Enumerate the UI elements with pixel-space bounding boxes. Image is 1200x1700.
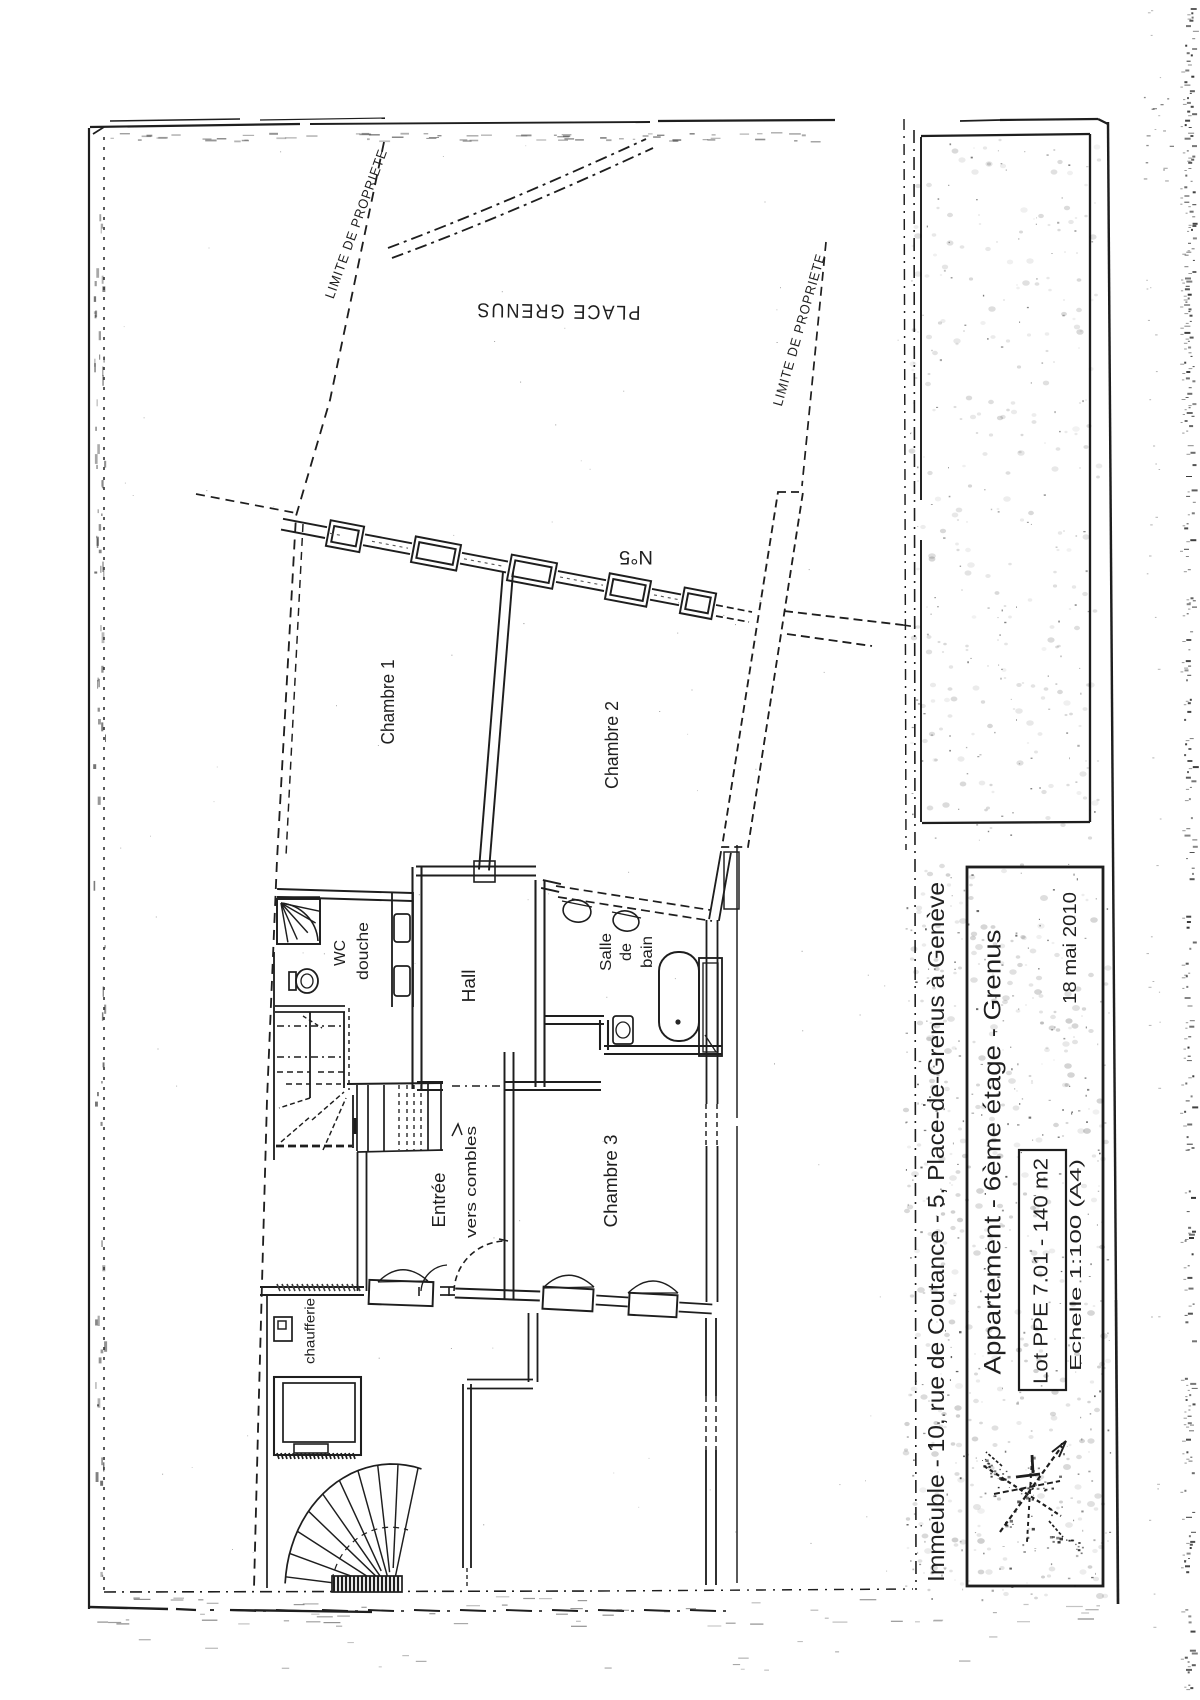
svg-text:Entrée: Entrée — [429, 1173, 449, 1228]
svg-text:PLACE GRENUS: PLACE GRENUS — [475, 298, 640, 323]
svg-text:N°5: N°5 — [619, 546, 653, 567]
svg-text:de: de — [618, 943, 635, 961]
svg-text:chaufferie: chaufferie — [302, 1298, 318, 1364]
svg-text:Chambre 1: Chambre 1 — [378, 660, 398, 745]
svg-text:bain: bain — [639, 936, 656, 968]
svg-text:Salle: Salle — [598, 933, 615, 971]
svg-text:Echelle 1:100 (A4): Echelle 1:100 (A4) — [1068, 1159, 1085, 1371]
svg-text:Chambre 3: Chambre 3 — [601, 1135, 621, 1228]
svg-text:Hall: Hall — [459, 970, 479, 1003]
svg-text:Chambre 2: Chambre 2 — [602, 701, 622, 789]
svg-text:vers combles: vers combles — [463, 1126, 480, 1238]
svg-text:douche: douche — [355, 922, 372, 980]
svg-text:WC: WC — [332, 940, 349, 966]
